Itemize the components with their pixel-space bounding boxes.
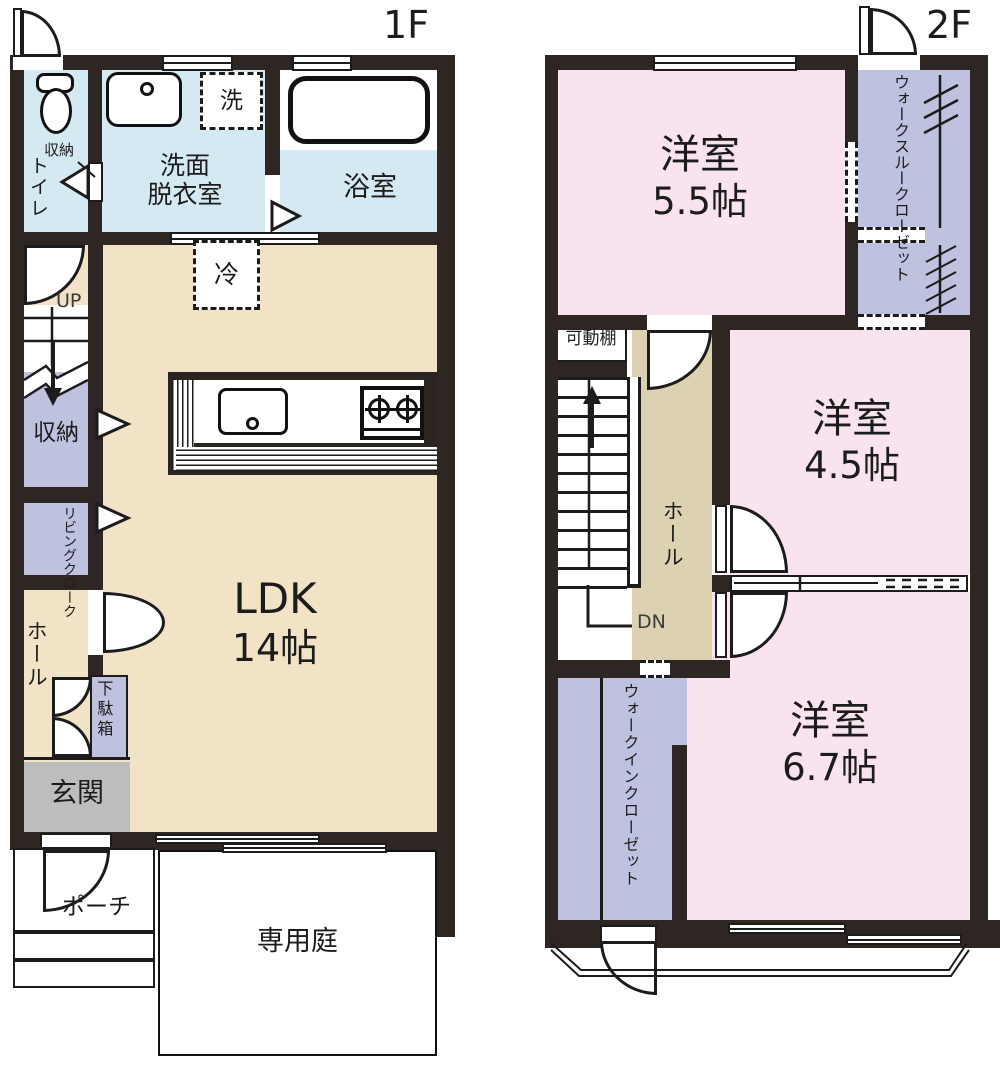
window — [292, 55, 352, 71]
burner-icon — [368, 398, 390, 420]
closet-opening — [845, 142, 858, 222]
walk-in-closet-label: ウォークインクローゼット — [620, 683, 638, 887]
washbasin-icon — [106, 72, 182, 127]
washer-space: 洗 — [200, 72, 263, 130]
toilet-shelf-label: 収納 — [44, 142, 74, 159]
stair-handrail — [627, 377, 641, 588]
wall — [672, 745, 687, 920]
door-leaf — [715, 592, 727, 658]
sliding-window — [728, 923, 846, 934]
sliding-window — [222, 843, 387, 853]
storage-label: 収納 — [24, 420, 88, 446]
door-opening — [647, 315, 712, 330]
room-6-7-label: 洋室6.7帖 — [730, 698, 930, 790]
wall — [24, 487, 103, 503]
stairs-1f — [24, 305, 88, 372]
toilet-bowl-icon — [40, 88, 72, 134]
fridge-space: 冷 — [193, 240, 260, 310]
bath-label: 浴室 — [318, 172, 422, 203]
sliding-partition — [730, 575, 968, 592]
closet-opening — [640, 660, 670, 678]
washroom-label: 洗面脱衣室 — [110, 152, 260, 210]
entrance-label: 玄関 — [24, 778, 130, 809]
room-4-5-label: 洋室4.5帖 — [752, 396, 952, 488]
wic-divider-line — [600, 678, 603, 920]
porch-step — [13, 932, 155, 960]
toilet-label: トイレ — [26, 156, 48, 219]
stairs-up-label: UP — [56, 291, 81, 313]
room-5-5-label: 洋室5.5帖 — [600, 132, 800, 224]
porch-step — [13, 960, 155, 988]
floor-title-1f: 1F — [383, 4, 429, 48]
burner-icon — [396, 398, 418, 420]
living-cloak-label: リビングクローク — [28, 506, 82, 572]
ldk-label: LDK14帖 — [170, 575, 380, 672]
wall-west — [10, 55, 24, 850]
wall — [88, 70, 102, 232]
washer-label: 洗 — [220, 88, 243, 114]
movable-shelf-label: 可動棚 — [566, 330, 617, 350]
hall-1f-label: ホール — [24, 620, 48, 689]
walk-through-closet-label: ウォークスルークローゼット — [862, 74, 914, 229]
shoe-box-label: 下駄箱 — [94, 680, 112, 740]
wall-east — [437, 55, 455, 937]
fridge-label: 冷 — [214, 261, 239, 290]
sliding-window — [846, 934, 962, 945]
faucet-icon — [140, 82, 154, 96]
door-opening — [13, 55, 63, 70]
stairs-2f — [553, 377, 627, 592]
bathtub-icon — [288, 76, 430, 144]
wall-east — [970, 55, 988, 935]
bath-door-opening — [265, 175, 280, 235]
swing-door-icon — [21, 10, 61, 57]
closet-opening — [858, 314, 925, 330]
garden-label: 専用庭 — [158, 926, 437, 957]
entrance-door-leaf — [40, 833, 112, 849]
door-leaf — [715, 505, 727, 573]
faucet-icon — [246, 417, 259, 430]
wall-stub — [968, 920, 1000, 948]
counter-hatch — [176, 447, 437, 471]
stove-grill-line — [364, 428, 420, 431]
window — [162, 55, 233, 71]
door-leaf — [859, 6, 870, 55]
wall-west — [545, 55, 558, 935]
swing-door-icon — [870, 8, 917, 55]
toilet-door-niche — [88, 162, 103, 202]
floor-title-2f: 2F — [926, 4, 972, 48]
hall-2f-label: ホール — [660, 500, 684, 569]
stair-landing — [553, 592, 632, 660]
porch-label: ポーチ — [62, 894, 131, 920]
floor-plan: 洗 冷 — [0, 0, 1000, 1072]
window — [653, 55, 797, 71]
balcony-door-icon — [600, 941, 657, 995]
wall — [712, 575, 730, 592]
door-opening — [858, 55, 920, 70]
stairs-down-label: DN — [637, 612, 666, 634]
door-opening — [88, 590, 103, 655]
wall — [545, 660, 730, 678]
wall — [712, 330, 730, 505]
